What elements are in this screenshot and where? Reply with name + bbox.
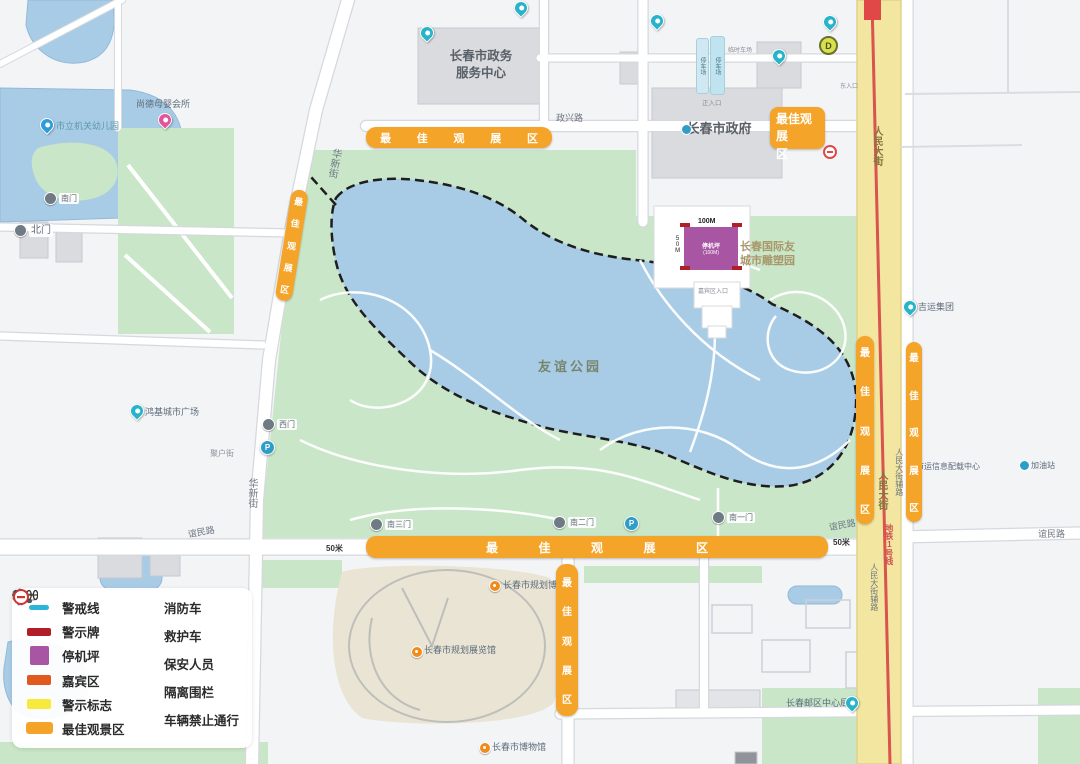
- sculpture-park-label: 长春国际友 城市雕塑园: [740, 240, 795, 269]
- legend-item: 警戒线: [24, 597, 126, 618]
- banner-best-viewing-top: 最佳观展区: [366, 127, 552, 148]
- gate-north: 北门: [14, 224, 53, 237]
- banner-box-line1: 最佳观展: [776, 111, 819, 146]
- city-museum-pin[interactable]: [479, 742, 491, 754]
- green-south-yimin: [252, 560, 342, 588]
- warning-mark-swatch: [27, 699, 51, 709]
- planning-hall-label: 长春市规划展览馆: [424, 646, 496, 656]
- road-label-yimin-east: 谊民路: [1038, 530, 1065, 540]
- legend-item: 嘉宾区: [24, 670, 126, 691]
- scale-label-50m-left: 50米: [326, 545, 343, 554]
- road-label-renmin-south: 人民大街: [876, 470, 887, 510]
- green-bottomright-2: [1038, 688, 1080, 764]
- legend-item: 警示标志: [24, 694, 126, 715]
- map-canvas: 最佳观展区 最佳观展 区 最佳观展区 最佳观展区 最佳观展区 最佳观展区 最佳观…: [0, 0, 1080, 764]
- parking-pin[interactable]: P: [624, 516, 639, 531]
- gate-south: 南门: [44, 192, 79, 205]
- warning-sign-bar: [732, 266, 742, 270]
- legend-item: 警示牌: [24, 621, 126, 642]
- road-label-renmin-north: 人民大街: [871, 126, 882, 166]
- juhu-street-label: 聚户街: [210, 450, 234, 459]
- parking-pin[interactable]: P: [260, 440, 275, 455]
- east-entrance-label: 东入口: [840, 84, 858, 91]
- legend-item: 最佳观景区: [24, 718, 126, 739]
- warning-sign-bar: [732, 223, 742, 227]
- park-name-label: 友谊公园: [538, 360, 602, 374]
- warning-sign-bar: [680, 266, 690, 270]
- gate-pin[interactable]: [712, 511, 725, 524]
- helipad-swatch: [30, 646, 49, 665]
- banner-best-viewing-right-2: 最佳观展区: [906, 342, 922, 522]
- legend-item: 停机坪: [24, 645, 126, 666]
- legend-card: 警戒线 警示牌 停机坪 嘉宾区 警示标志 最佳观景区: [12, 588, 252, 748]
- banner-box-line2: 区: [776, 146, 819, 163]
- gas-station-label: 加油站: [1031, 462, 1055, 471]
- road-label-huaxin-south: 华新街: [246, 478, 257, 508]
- banner-best-viewing-bottom-vert: 最佳观展区: [556, 564, 578, 716]
- road-label-renmin-fulu-1: 人民大街辅路: [894, 448, 903, 496]
- pond-right-small: [788, 586, 842, 604]
- gate-south-3: 南三门: [370, 518, 413, 531]
- gate-pin[interactable]: [370, 518, 383, 531]
- gate-pin[interactable]: [44, 192, 57, 205]
- metro-station-block: [864, 0, 881, 20]
- city-museum-label: 长春市博物馆: [492, 743, 546, 753]
- gov-service-center-label: 长春市政务 服务中心: [420, 48, 542, 82]
- legend-column-right: 消防车 救护车: [130, 597, 246, 739]
- info-center-label: 市运信息配载中心: [916, 463, 980, 472]
- green-strip-mid: [584, 566, 762, 583]
- gate-south-1: 南一门: [712, 511, 755, 524]
- temp-parking-label: 临时车场: [728, 48, 752, 55]
- guest-area-swatch: [27, 675, 51, 685]
- warning-sign-bar: [680, 223, 690, 227]
- vip-entrance-label: 嘉宾区入口: [698, 289, 728, 296]
- no-entry-marker[interactable]: [823, 145, 837, 159]
- poi-dot[interactable]: [681, 124, 692, 135]
- road-label-zhengxing: 政兴路: [556, 114, 583, 124]
- parking-lot-label: 停车场: [696, 38, 709, 94]
- main-entrance-label: 正入口: [702, 100, 722, 107]
- gate-pin[interactable]: [14, 224, 27, 237]
- best-viewing-swatch: [26, 722, 53, 734]
- metro-line-label: 地铁1号线: [884, 524, 893, 565]
- banner-best-viewing-right-1: 最佳观展区: [856, 336, 874, 524]
- gate-pin[interactable]: [553, 516, 566, 529]
- scale-label-50m-right: 50米: [833, 539, 850, 548]
- banner-best-viewing-box: 最佳观展 区: [770, 107, 825, 149]
- parking-lot-label: 停车场: [710, 36, 725, 95]
- legend-item: 救护车: [130, 625, 246, 646]
- jiyun-group-label: 吉运集团: [918, 303, 954, 313]
- banner-best-viewing-bottom: 最佳观展区: [366, 536, 828, 558]
- helipad-side-label: 50M: [674, 236, 681, 254]
- kindergarten-label: 市立机关幼儿园: [56, 122, 119, 132]
- metro-exit-d-marker[interactable]: D: [819, 36, 838, 55]
- warning-sign-swatch: [27, 628, 51, 636]
- road-label-renmin-fulu-2: 人民大街辅路: [869, 563, 878, 611]
- helipad-width-label: 100M: [698, 218, 716, 226]
- muying-club-label: 尚德母婴会所: [136, 100, 190, 110]
- legend-item: 保安人员: [130, 653, 246, 674]
- cordon-line-swatch: [29, 605, 49, 610]
- planning-hall-pin[interactable]: [411, 646, 423, 658]
- planning-museum-pin[interactable]: [489, 580, 501, 592]
- gas-station-dot[interactable]: [1019, 460, 1030, 471]
- gate-pin[interactable]: [262, 418, 275, 431]
- legend-column-left: 警戒线 警示牌 停机坪 嘉宾区 警示标志 最佳观景区: [24, 597, 126, 739]
- gate-south-2: 南二门: [553, 516, 596, 529]
- post-center-label: 长春邮区中心局: [786, 699, 849, 709]
- gate-west: 西门: [262, 418, 297, 431]
- legend-item: 车辆禁止通行: [130, 709, 246, 730]
- hongji-plaza-label: 鸿基城市广场: [145, 408, 199, 418]
- legend-item: 消防车: [130, 597, 246, 618]
- helipad-pad: 停机坪 (100M): [684, 227, 738, 270]
- legend-item: 隔离围栏: [130, 681, 246, 702]
- minor-grid-lines: [900, 0, 1080, 147]
